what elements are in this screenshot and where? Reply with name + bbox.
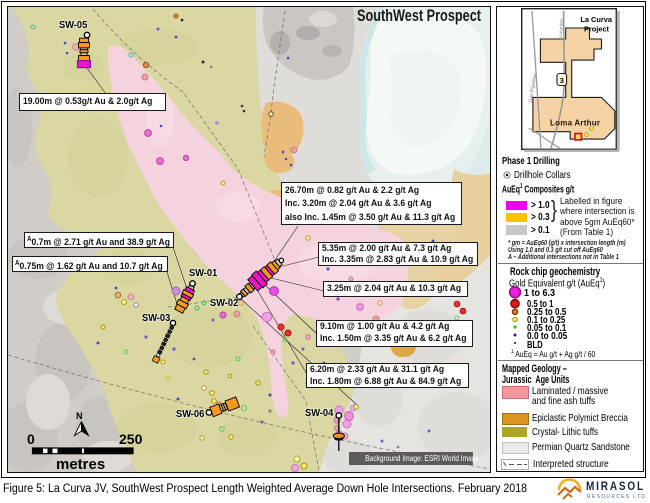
svg-text:Project: Project [584,25,610,34]
svg-text:Loma Arthur: Loma Arthur [550,119,600,128]
svg-text:Avutardas: Avutardas [558,18,565,40]
svg-text:La Curva: La Curva [580,15,613,24]
svg-text:3: 3 [560,76,564,85]
